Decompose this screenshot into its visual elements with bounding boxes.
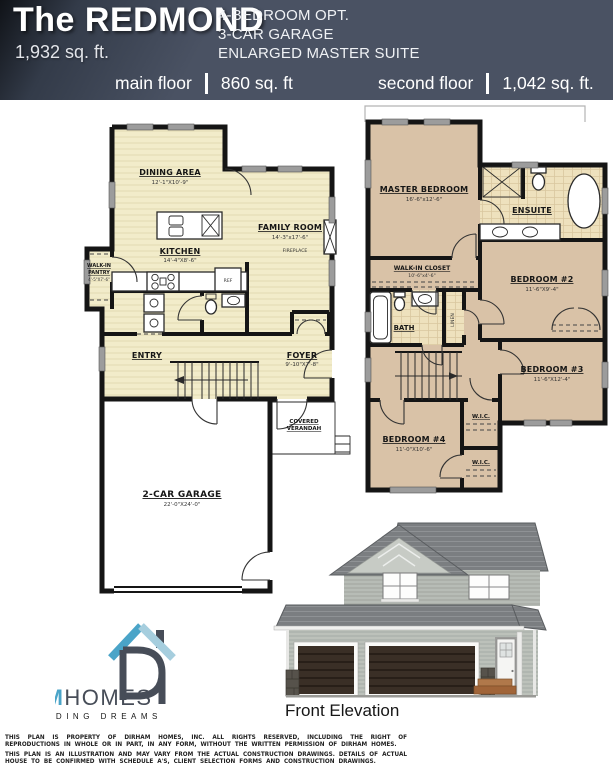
bedroom4-label: BEDROOM #4 — [383, 435, 446, 444]
fireplace-icon — [324, 220, 336, 254]
main-floor-label: main floor — [115, 73, 192, 94]
bedroom3-label: BEDROOM #3 — [521, 365, 584, 374]
feature-list: 4-BEDROOM OPT. 3-CAR GARAGE ENLARGED MAS… — [218, 6, 420, 63]
bedroom3-dims: 11'-6"X12'-4" — [534, 377, 571, 383]
foundation-line — [286, 695, 536, 698]
entry-steps — [474, 679, 516, 694]
feature-garage: 3-CAR GARAGE — [218, 25, 420, 44]
upper-double-window — [469, 575, 509, 599]
svg-text:DIRHAMHOMES: DIRHAMHOMES — [55, 685, 153, 710]
foyer-dims: 9'-10"X7'-8" — [285, 362, 318, 368]
bedroom4-dims: 11'-0"X10'-6" — [396, 447, 433, 453]
master-bedroom-label: MASTER BEDROOM — [380, 185, 469, 194]
disclaimer-line-2: THIS PLAN IS AN ILLUSTRATION AND MAY VAR… — [5, 752, 407, 766]
dining-area-dims: 12'-1"X10'-9" — [152, 180, 189, 186]
corner-trim — [533, 630, 536, 696]
brand-name-secondary: HOMES — [64, 685, 152, 710]
bedroom2-dims: 11'-6"X9'-4" — [525, 287, 558, 293]
elevation-caption: Front Elevation — [285, 701, 399, 721]
kitchen-dims: 14'-4"X8'-6" — [163, 258, 196, 264]
brand-tagline: BUILDING DREAMS — [55, 712, 162, 721]
foyer-label: FOYER — [287, 351, 317, 360]
pantry-label-1: WALK-IN — [87, 263, 111, 269]
bathtub-icon — [370, 292, 391, 343]
builder-logo: DIRHAMHOMES BUILDING DREAMS — [55, 610, 245, 725]
plan-total-area: 1,932 sq. ft. — [15, 42, 109, 63]
double-vanity-icon — [480, 224, 560, 240]
porch-post — [517, 632, 522, 696]
second-floor-area: 1,042 sq. ft. — [502, 73, 593, 94]
entry-label: ENTRY — [132, 351, 162, 360]
master-bedroom-dims: 16'-6"x12'-6" — [406, 197, 442, 203]
front-elevation — [272, 513, 612, 708]
garage-label: 2-CAR GARAGE — [142, 490, 221, 500]
second-floor-tag: second floor 1,042 sq. ft. — [378, 70, 594, 96]
family-room-dims: 14'-3"x17'-6" — [272, 235, 308, 241]
second-floor-label: second floor — [378, 73, 473, 94]
gable-window — [381, 573, 419, 602]
walk-in-closet-label: WALK-IN CLOSET — [394, 265, 451, 272]
garage-door — [114, 587, 242, 592]
lower-roof — [274, 605, 546, 630]
wic1-label: W.I.C. — [472, 414, 490, 420]
bath-label: BATH — [394, 324, 415, 332]
family-room-label: FAMILY ROOM — [258, 223, 322, 232]
svg-text:REF: REF — [224, 278, 233, 284]
linen-label: LINEN — [450, 313, 456, 327]
toilet-icon — [531, 167, 546, 190]
kitchen-island — [157, 212, 222, 239]
pantry-label-2: PANTRY — [88, 270, 110, 276]
garage-door-double — [365, 642, 479, 696]
main-floor-tag: main floor 860 sq. ft — [115, 70, 293, 96]
separator-bar — [205, 73, 208, 94]
bedroom2-label: BEDROOM #2 — [511, 275, 574, 284]
dining-area-label: DINING AREA — [139, 168, 201, 177]
separator-bar — [486, 73, 489, 94]
kitchen-label: KITCHEN — [160, 247, 201, 256]
ensuite-label: ENSUITE — [512, 206, 552, 215]
verandah-label-2: VERANDAH — [287, 426, 322, 432]
feature-master-suite: ENLARGED MASTER SUITE — [218, 44, 420, 63]
brand-name-primary: DIRHAM — [55, 685, 64, 710]
legal-disclaimer: THIS PLAN IS PROPERTY OF DIRHAM HOMES, I… — [5, 735, 407, 768]
main-floor-area: 860 sq. ft — [221, 73, 293, 94]
toilet-icon — [394, 292, 405, 311]
header-band: The REDMOND 1,932 sq. ft. 4-BEDROOM OPT.… — [0, 0, 613, 100]
disclaimer-line-1: THIS PLAN IS PROPERTY OF DIRHAM HOMES, I… — [5, 735, 407, 749]
stove-icon — [147, 272, 179, 291]
soaker-tub-icon — [568, 174, 600, 228]
verandah-label-1: COVERED — [289, 419, 319, 425]
fridge-icon: REF — [215, 268, 241, 291]
plan-sheet: The REDMOND 1,932 sq. ft. 4-BEDROOM OPT.… — [0, 0, 613, 768]
pantry-dims: 4'-5"X7'-6" — [88, 277, 110, 282]
feature-bedroom-option: 4-BEDROOM OPT. — [218, 6, 420, 25]
wic2-label: W.I.C. — [472, 460, 490, 466]
garage-door-single — [294, 642, 358, 696]
walk-in-closet-dims: 10'-6"x4'-6" — [408, 273, 435, 279]
fireplace-label: FIREPLACE — [283, 248, 308, 254]
second-floor-plan: MASTER BEDROOM 16'-6"x12'-6" ENSUITE WAL… — [352, 100, 612, 510]
garage-dims: 22'-0"X24'-0" — [164, 502, 201, 508]
